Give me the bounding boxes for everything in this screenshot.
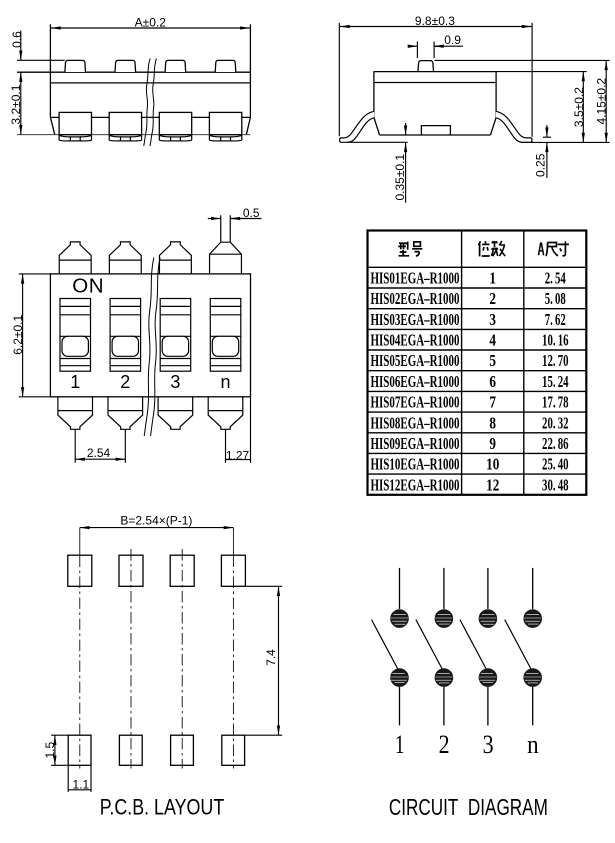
svg-text:0.35±0.1: 0.35±0.1	[393, 154, 407, 201]
svg-text:5: 5	[489, 351, 496, 370]
svg-text:0.9: 0.9	[444, 33, 461, 47]
svg-text:1: 1	[489, 269, 496, 288]
svg-text:8: 8	[489, 413, 496, 432]
svg-text:HIS01EGA–R1000: HIS01EGA–R1000	[371, 269, 460, 288]
svg-text:A±0.2: A±0.2	[135, 16, 167, 30]
svg-text:7: 7	[489, 393, 496, 412]
svg-text:HIS08EGA–R1000: HIS08EGA–R1000	[371, 413, 460, 432]
svg-text:7.4: 7.4	[264, 649, 278, 666]
svg-text:6.2±0.1: 6.2±0.1	[11, 315, 25, 355]
svg-text:6: 6	[489, 372, 496, 391]
svg-text:3: 3	[489, 310, 496, 329]
svg-text:1.1: 1.1	[73, 777, 90, 791]
svg-text:1.5: 1.5	[43, 742, 57, 759]
svg-text:n: n	[527, 730, 539, 759]
svg-text:7. 62: 7. 62	[545, 310, 566, 329]
svg-text:17. 78: 17. 78	[542, 393, 569, 412]
svg-text:30. 48: 30. 48	[542, 475, 569, 494]
svg-text:HIS06EGA–R1000: HIS06EGA–R1000	[371, 372, 460, 391]
svg-text:HIS09EGA–R1000: HIS09EGA–R1000	[371, 434, 460, 453]
svg-text:0.5: 0.5	[243, 206, 260, 220]
svg-text:15. 24: 15. 24	[542, 372, 569, 391]
svg-text:3.2±0.1: 3.2±0.1	[9, 84, 23, 124]
svg-text:5. 08: 5. 08	[545, 289, 566, 308]
svg-text:3: 3	[170, 372, 180, 392]
svg-text:HIS07EGA–R1000: HIS07EGA–R1000	[371, 393, 460, 412]
svg-text:2. 54: 2. 54	[545, 269, 566, 288]
svg-text:3.5±0.2: 3.5±0.2	[572, 87, 586, 127]
svg-text:n: n	[220, 372, 230, 392]
svg-text:20. 32: 20. 32	[542, 413, 569, 432]
svg-text:0.25: 0.25	[534, 153, 548, 177]
svg-text:HIS03EGA–R1000: HIS03EGA–R1000	[371, 310, 460, 329]
svg-text:12: 12	[486, 475, 499, 494]
svg-text:1: 1	[395, 730, 405, 759]
svg-text:2: 2	[120, 372, 130, 392]
svg-text:1.27: 1.27	[226, 449, 250, 463]
svg-text:10. 16: 10. 16	[542, 331, 569, 350]
svg-text:4: 4	[489, 331, 496, 350]
svg-text:25. 40: 25. 40	[542, 455, 569, 474]
svg-text:22. 86: 22. 86	[542, 434, 569, 453]
svg-text:10: 10	[486, 455, 499, 474]
svg-text:0.6: 0.6	[10, 31, 24, 48]
svg-text:CIRCUIT DIAGRAM: CIRCUIT DIAGRAM	[389, 794, 548, 820]
svg-text:HIS12EGA–R1000: HIS12EGA–R1000	[371, 475, 460, 494]
svg-text:4.15±0.2: 4.15±0.2	[595, 78, 609, 125]
svg-text:2: 2	[439, 730, 450, 759]
svg-text:HIS10EGA–R1000: HIS10EGA–R1000	[371, 455, 460, 474]
svg-text:9: 9	[489, 434, 496, 453]
svg-text:2: 2	[489, 289, 496, 308]
svg-text:B=2.54×(P-1): B=2.54×(P-1)	[120, 513, 192, 527]
svg-text:3: 3	[483, 730, 494, 759]
svg-text:2.54: 2.54	[87, 446, 111, 460]
svg-text:1: 1	[70, 372, 80, 392]
svg-text:ON: ON	[72, 275, 104, 298]
svg-text:P.C.B. LAYOUT: P.C.B. LAYOUT	[100, 794, 225, 819]
svg-text:HIS05EGA–R1000: HIS05EGA–R1000	[371, 351, 460, 370]
svg-text:12. 70: 12. 70	[542, 351, 569, 370]
svg-text:HIS02EGA–R1000: HIS02EGA–R1000	[371, 289, 460, 308]
svg-text:HIS04EGA–R1000: HIS04EGA–R1000	[371, 331, 460, 350]
svg-text:9.8±0.3: 9.8±0.3	[415, 14, 455, 28]
